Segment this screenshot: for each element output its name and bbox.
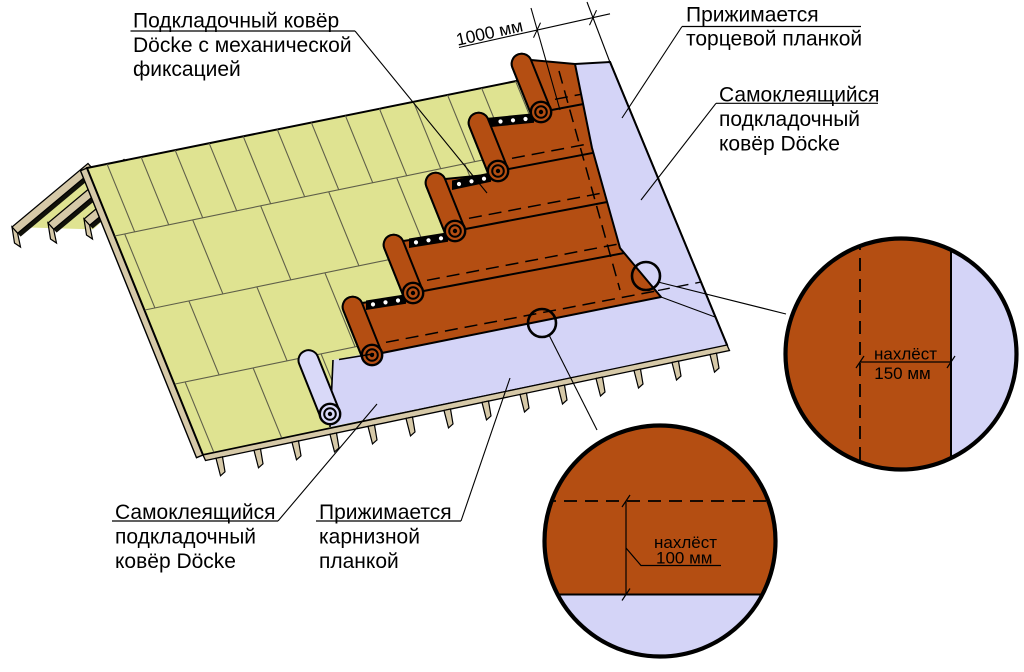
- svg-text:нахлёст: нахлёст: [874, 345, 937, 364]
- svg-text:150 мм: 150 мм: [874, 364, 930, 383]
- svg-text:100 мм: 100 мм: [656, 549, 712, 568]
